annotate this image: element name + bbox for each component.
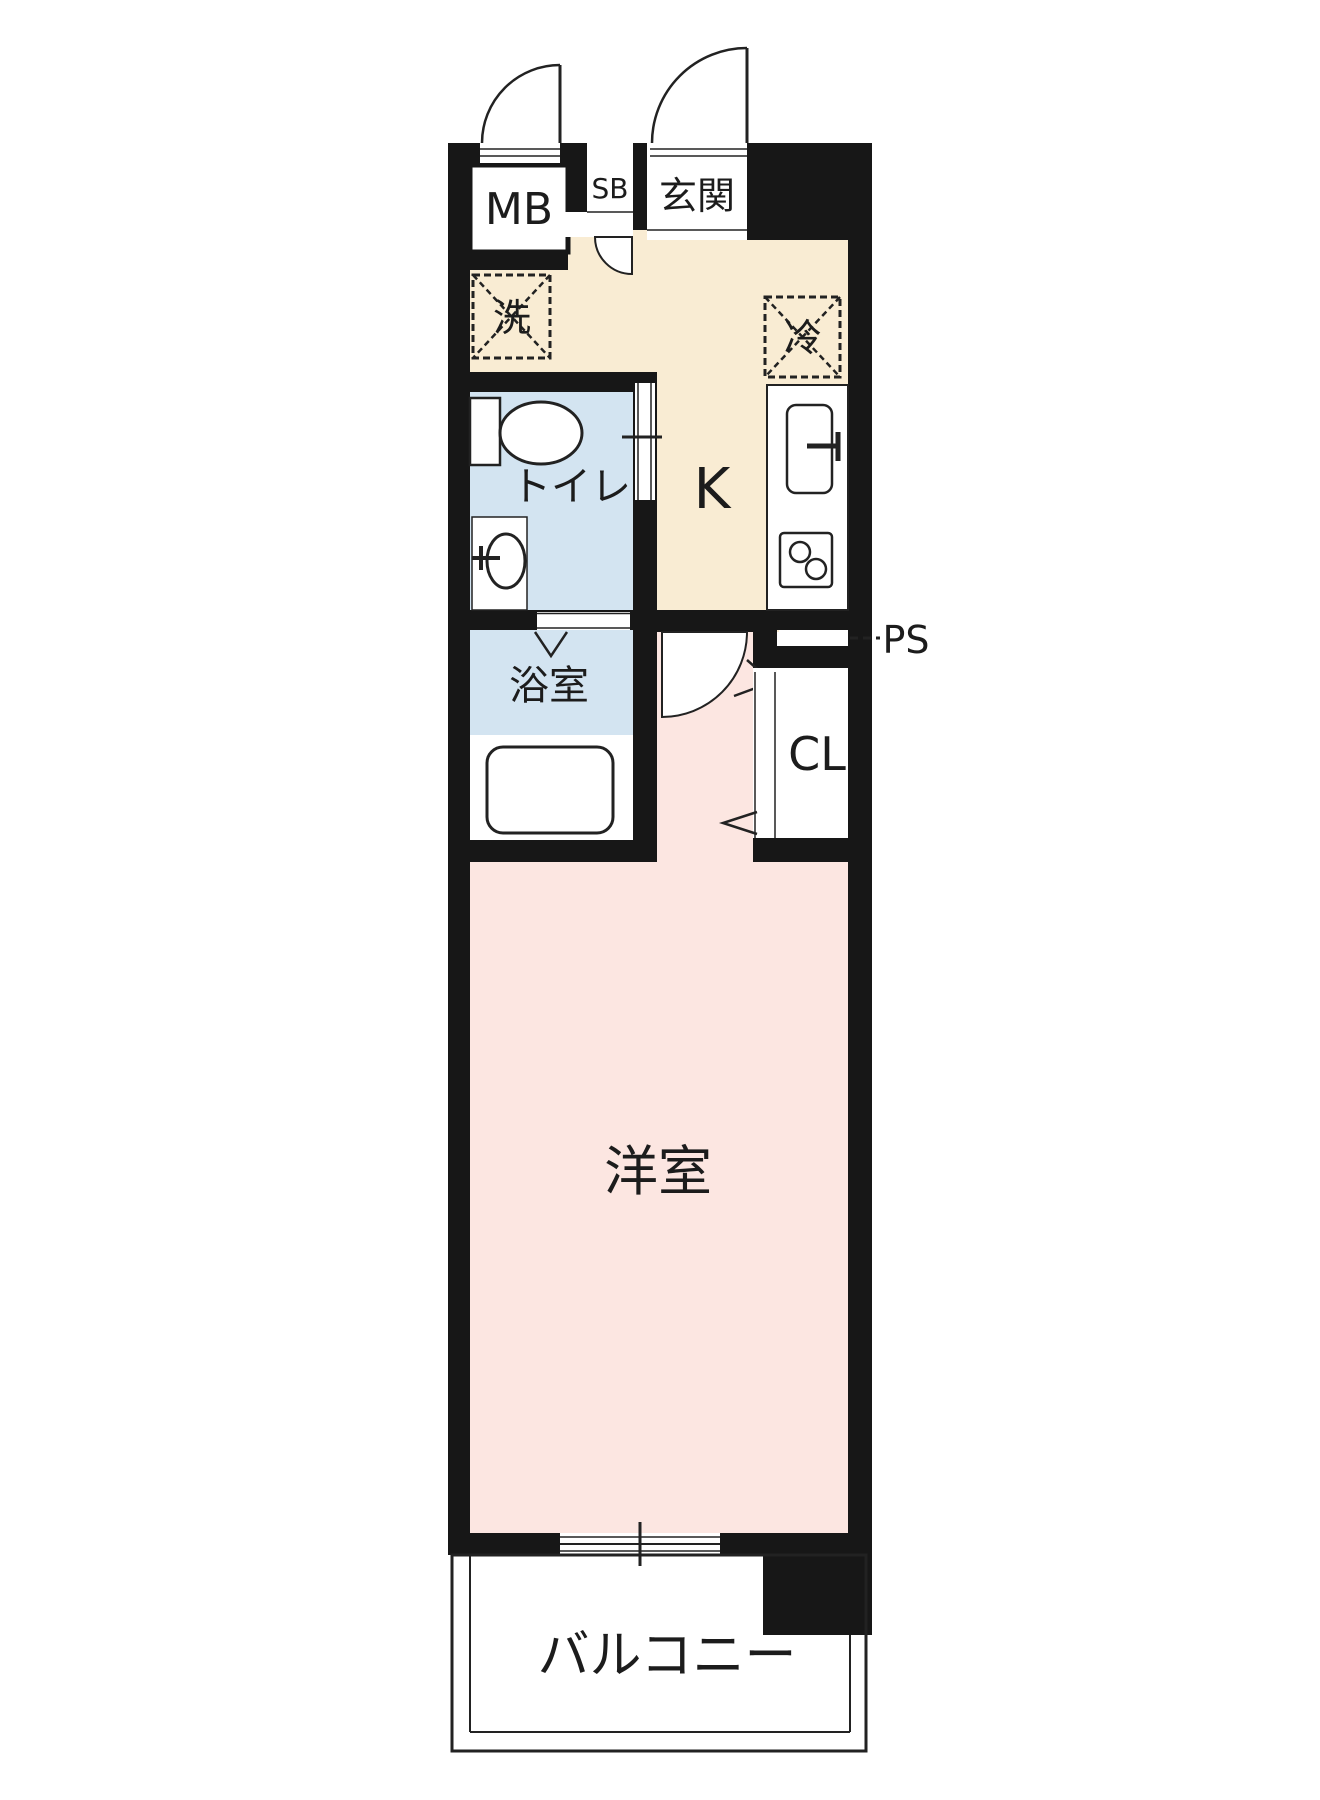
label-closet: CL (788, 727, 846, 781)
wall-toilet-top (448, 372, 657, 392)
bathtub (487, 747, 613, 833)
label-toilet: トイレ (511, 464, 631, 510)
wall-mid-vertical (753, 610, 777, 672)
mb-door-gap (480, 143, 560, 163)
toilet-bowl (500, 402, 582, 464)
label-meter-box: MB (485, 184, 553, 235)
label-entrance: 玄関 (659, 174, 735, 218)
label-shoe-box: SB (592, 172, 629, 205)
wall-right-outer (848, 240, 872, 1635)
floor-plan-page: MB SB 玄関 洗 冷 トイレ K PS 浴室 CL 洋室 バルコニー (0, 0, 1320, 1800)
pipe-space-slot (779, 630, 848, 646)
entrance-door-swing-arc (652, 48, 747, 143)
label-bathroom: 浴室 (509, 663, 589, 709)
label-refrigerator: 冷 (784, 316, 822, 360)
stove-burner-2 (806, 559, 826, 579)
wall-top-right-block (747, 143, 872, 240)
entrance-door-gap (650, 143, 747, 163)
label-washing-machine: 洗 (493, 296, 531, 340)
kitchen-sink (787, 405, 832, 493)
label-balcony: バルコニー (538, 1626, 797, 1686)
wall-bottom-right-block (763, 1533, 872, 1635)
wall-sb-right (633, 143, 647, 230)
floor-plan-svg: MB SB 玄関 洗 冷 トイレ K PS 浴室 CL 洋室 バルコニー (0, 0, 1320, 1800)
wall-bottom-mid (720, 1533, 772, 1555)
wall-mb-bottom (448, 252, 568, 270)
shoe-box-lower (560, 212, 633, 237)
wall-bottom-left (448, 1533, 560, 1555)
label-pipe-space: PS (882, 618, 929, 662)
wall-bath-bottom (448, 840, 657, 862)
label-kitchen: K (694, 457, 732, 522)
wash-basin (487, 534, 525, 588)
stove (780, 533, 832, 587)
toilet-tank (470, 398, 500, 465)
stove-burner-1 (790, 542, 810, 562)
label-western-room: 洋室 (604, 1140, 712, 1203)
mb-door-swing-arc (482, 65, 560, 143)
